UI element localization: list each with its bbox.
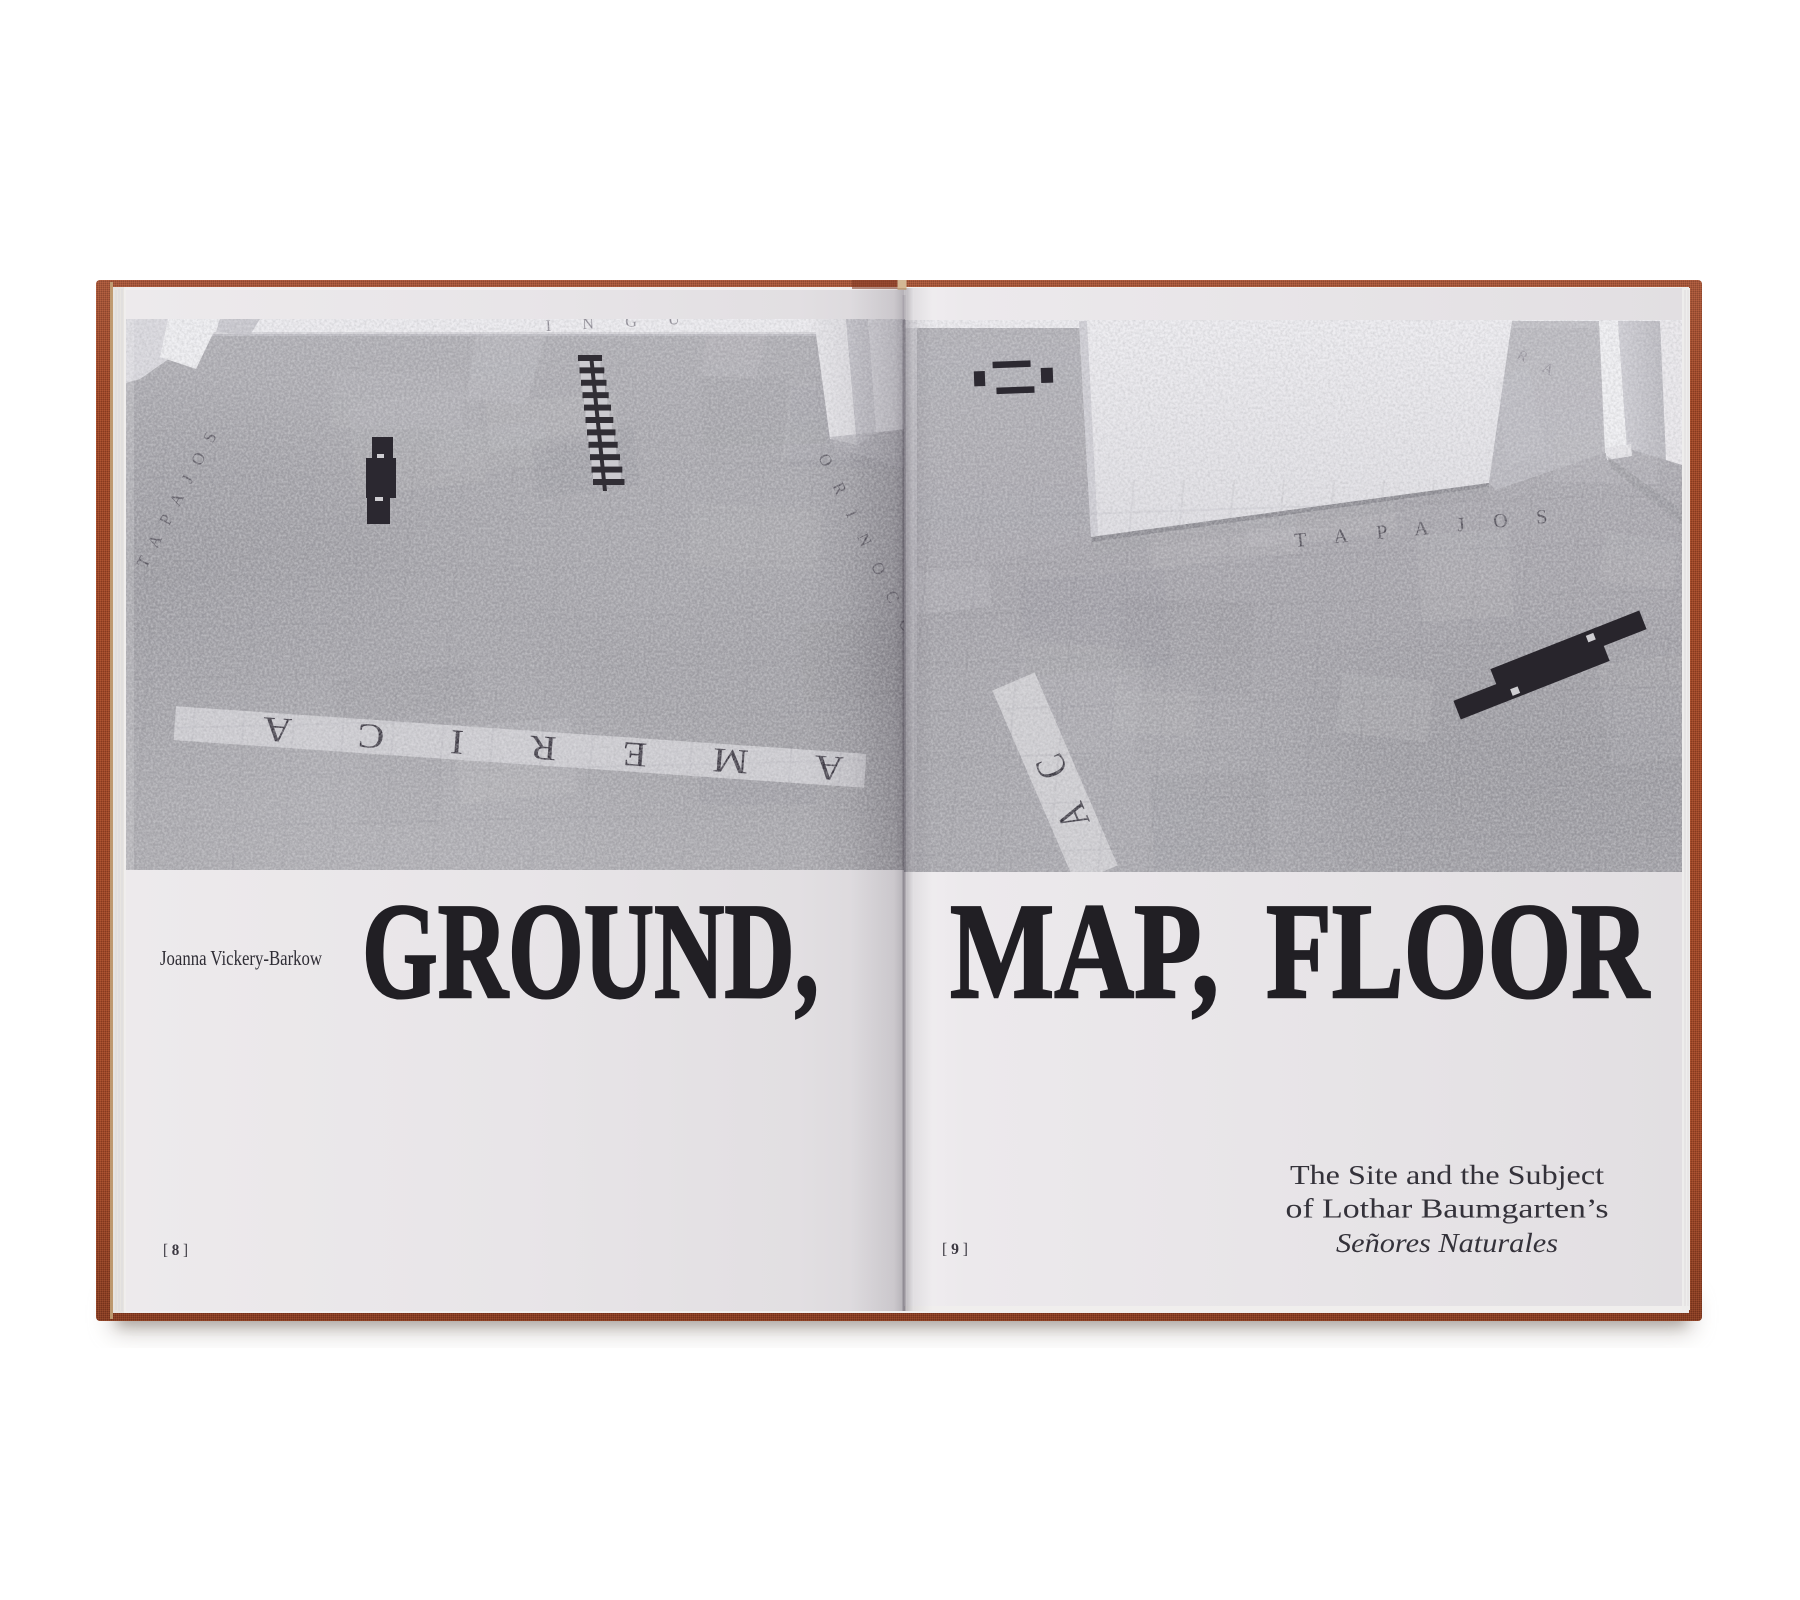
svg-text:of Lothar Baumgarten’s: of Lothar Baumgarten’s [1286,1193,1609,1224]
svg-text:[ 9 ]: [ 9 ] [942,1241,968,1258]
svg-text:Señores Naturales: Señores Naturales [1336,1227,1558,1258]
svg-text:FLOOR: FLOOR [1266,875,1651,1027]
svg-text:The Site and the Subject: The Site and the Subject [1290,1159,1604,1190]
svg-text:[ 8 ]: [ 8 ] [163,1242,188,1259]
svg-text:GROUND,: GROUND, [362,875,819,1027]
svg-text:MAP,: MAP, [950,875,1219,1027]
svg-text:Joanna Vickery-Barkow: Joanna Vickery-Barkow [160,946,322,970]
